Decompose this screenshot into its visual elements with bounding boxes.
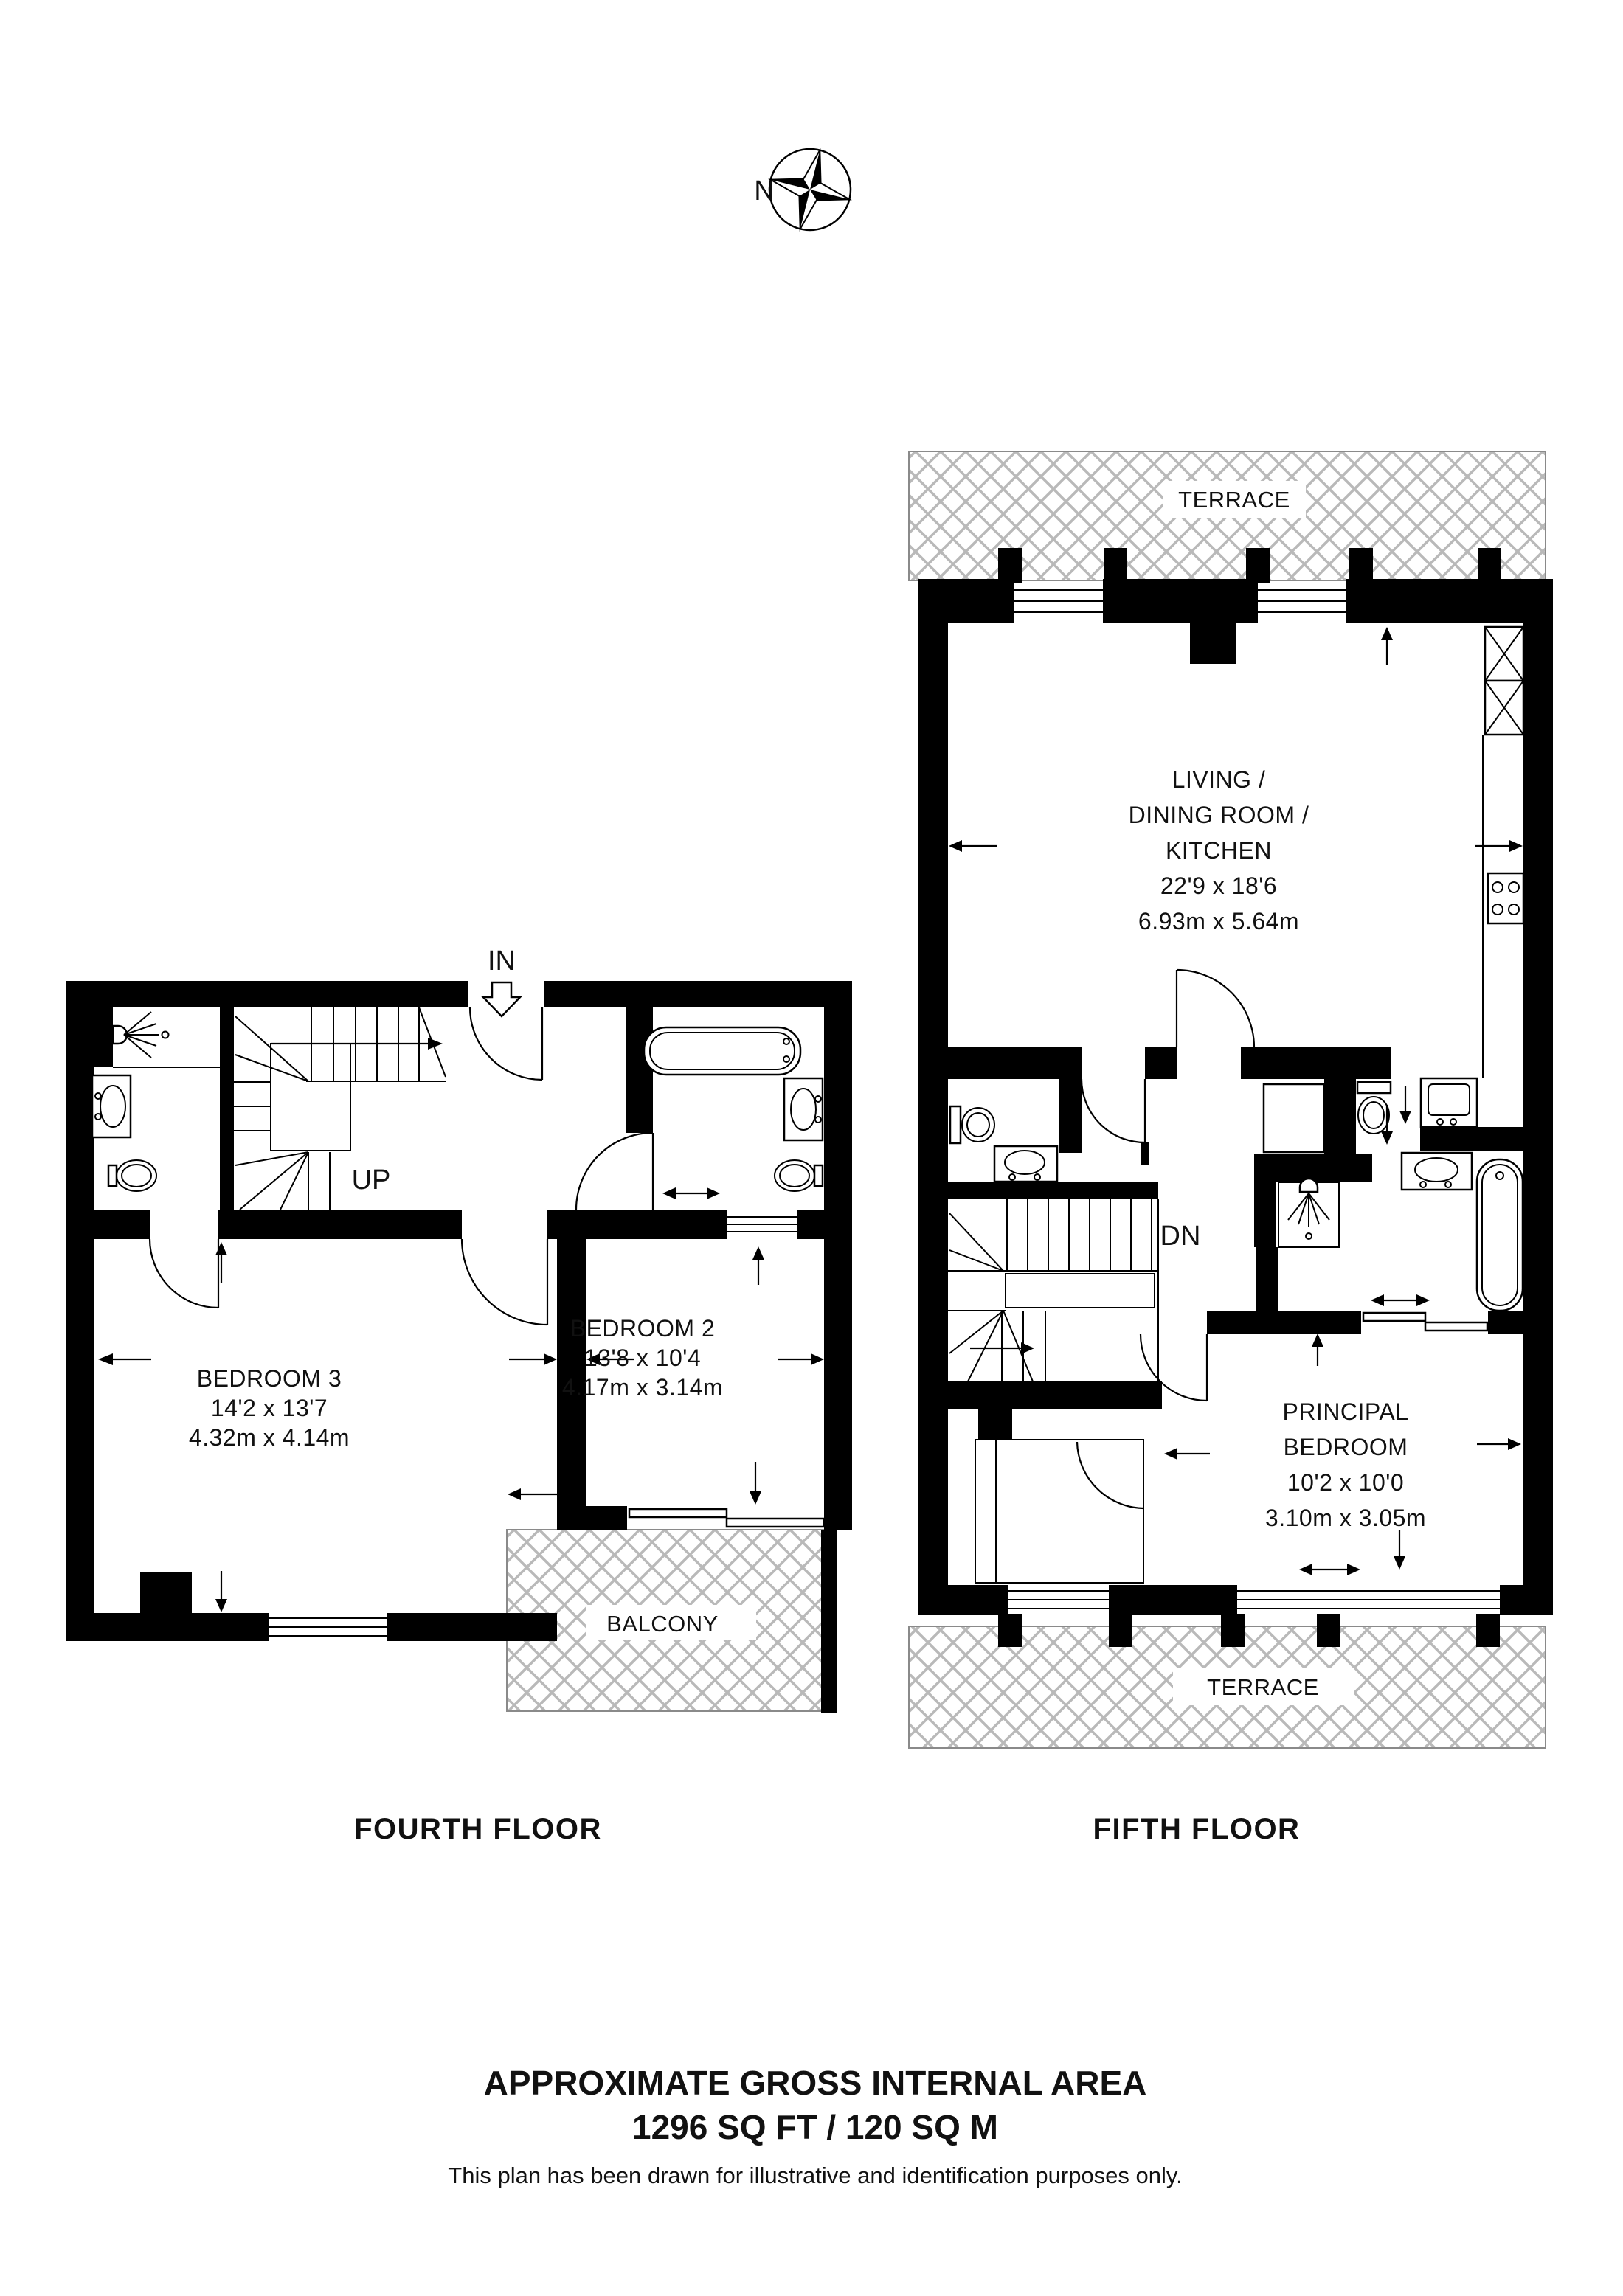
- fourth-floor-title: FOURTH FLOOR: [354, 1813, 602, 1845]
- terrace-bottom-label: TERRACE: [1207, 1674, 1319, 1700]
- bathtub-icon: [644, 1027, 800, 1075]
- svg-text:BEDROOM: BEDROOM: [1284, 1434, 1408, 1460]
- sliding-door-balcony: [629, 1509, 824, 1527]
- gross-internal-area-title: APPROXIMATE GROSS INTERNAL AREA: [484, 2064, 1147, 2102]
- window-living-right: [1258, 590, 1346, 612]
- svg-text:22'9 x 18'6: 22'9 x 18'6: [1160, 873, 1277, 899]
- footer: APPROXIMATE GROSS INTERNAL AREA 1296 SQ …: [448, 2064, 1182, 2188]
- floorplan-page: N BALCONY: [0, 0, 1623, 2296]
- shower-icon: [1278, 1179, 1339, 1247]
- room-label-bedroom2: BEDROOM 2 13'8 x 10'4 4.17m x 3.14m: [562, 1315, 723, 1401]
- window-bedroom3: [269, 1618, 387, 1636]
- sink-icon: [784, 1078, 823, 1140]
- svg-text:LIVING /: LIVING /: [1172, 766, 1266, 793]
- room-label-living-dining-kitchen: LIVING / DINING ROOM / KITCHEN 22'9 x 18…: [1129, 766, 1309, 934]
- entrance-in-label: IN: [488, 946, 516, 977]
- room-label-principal-bedroom: PRINCIPAL BEDROOM 10'2 x 10'0 3.10m x 3.…: [1265, 1398, 1426, 1531]
- svg-text:10'2 x 10'0: 10'2 x 10'0: [1287, 1469, 1404, 1496]
- shower-icon: [113, 1012, 220, 1067]
- terrace-top-label: TERRACE: [1178, 487, 1290, 513]
- sliding-door-bathroom: [1363, 1313, 1487, 1331]
- svg-text:DINING ROOM /: DINING ROOM /: [1129, 802, 1309, 828]
- svg-text:6.93m x 5.64m: 6.93m x 5.64m: [1138, 908, 1299, 934]
- window-living-left: [1014, 590, 1103, 612]
- entrance-door-arc: [470, 1007, 542, 1080]
- svg-text:4.32m x 4.14m: 4.32m x 4.14m: [189, 1424, 350, 1451]
- toilet-icon: [950, 1106, 994, 1143]
- compass-north-label: N: [754, 176, 774, 207]
- door-bedroom3: [150, 1239, 218, 1308]
- svg-text:4.17m x 3.14m: 4.17m x 3.14m: [562, 1374, 723, 1401]
- entrance: IN: [470, 946, 542, 1080]
- door-bathroom: [576, 1133, 653, 1210]
- window-bedroom-left: [1008, 1591, 1109, 1609]
- toilet-icon: [1357, 1082, 1391, 1134]
- staircase-up: UP: [234, 1007, 446, 1210]
- fifth-floor-plan: TERRACE TERRACE: [909, 451, 1553, 1748]
- floorplan-canvas: N BALCONY: [0, 0, 1623, 2296]
- staircase-down: DN: [948, 1199, 1200, 1381]
- hob-icon: [1488, 873, 1523, 923]
- entrance-arrow-icon: [483, 982, 520, 1016]
- door-living: [1177, 970, 1254, 1047]
- balcony-label: BALCONY: [606, 1611, 719, 1637]
- window-in-wall: [727, 1217, 797, 1232]
- toilet-icon: [108, 1160, 156, 1191]
- closet-room: [975, 1440, 1143, 1583]
- svg-text:3.10m x 3.05m: 3.10m x 3.05m: [1265, 1505, 1426, 1531]
- svg-text:BEDROOM 2: BEDROOM 2: [570, 1315, 716, 1342]
- toilet-icon: [775, 1160, 823, 1191]
- gross-internal-area-value: 1296 SQ FT / 120 SQ M: [632, 2108, 998, 2146]
- svg-text:14'2 x 13'7: 14'2 x 13'7: [211, 1395, 328, 1421]
- sink-icon: [1402, 1153, 1472, 1190]
- bathtub-icon: [1477, 1159, 1523, 1311]
- svg-text:BEDROOM 3: BEDROOM 3: [197, 1365, 342, 1392]
- fourth-floor-plan: BALCONY: [66, 946, 852, 1713]
- window-bedroom-right: [1237, 1591, 1500, 1609]
- kitchen-sink-icon: [1421, 1078, 1477, 1127]
- door-closet: [1077, 1442, 1143, 1508]
- room-label-bedroom3: BEDROOM 3 14'2 x 13'7 4.32m x 4.14m: [189, 1365, 350, 1451]
- compass-icon: N: [754, 140, 859, 238]
- svg-text:PRINCIPAL: PRINCIPAL: [1282, 1398, 1408, 1425]
- disclaimer-text: This plan has been drawn for illustrativ…: [448, 2163, 1182, 2188]
- kitchen-units: [1421, 627, 1523, 1127]
- stairs-up-label: UP: [352, 1165, 391, 1196]
- svg-text:13'8 x 10'4: 13'8 x 10'4: [584, 1345, 701, 1371]
- stair-direction-arrow: [271, 1038, 443, 1050]
- fifth-floor-title: FIFTH FLOOR: [1093, 1813, 1301, 1845]
- stairs-down-label: DN: [1160, 1221, 1201, 1252]
- sink-icon: [994, 1146, 1057, 1182]
- sink-icon: [92, 1075, 131, 1137]
- door-bedroom2: [462, 1239, 547, 1325]
- door-wc: [1082, 1079, 1145, 1142]
- svg-text:KITCHEN: KITCHEN: [1166, 837, 1272, 864]
- cupboard: [1264, 1084, 1324, 1152]
